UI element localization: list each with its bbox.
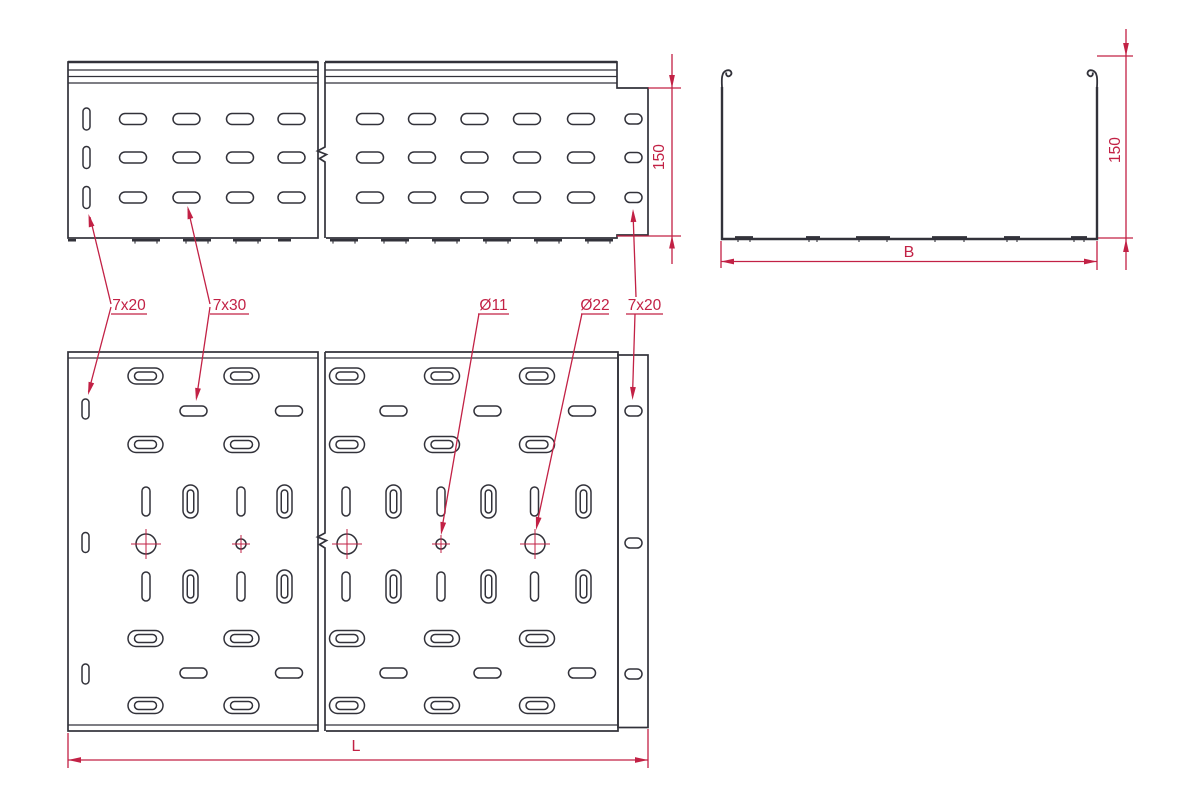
- side-slot-7x30: [120, 152, 147, 163]
- leader-arrow: [185, 205, 194, 219]
- embossed-slot: [128, 368, 163, 384]
- embossed-slot: [520, 368, 555, 384]
- plan-slot-vertical: [237, 487, 245, 516]
- embossed-slot-vertical-inner: [390, 490, 397, 513]
- plan-slot-7x30: [569, 406, 596, 416]
- side-end-slot-7x20: [625, 193, 642, 203]
- embossed-slot-inner: [431, 635, 453, 643]
- embossed-slot-inner: [135, 702, 157, 710]
- dimension-arrow: [721, 259, 734, 265]
- side-section1-outline: [68, 62, 318, 238]
- embossed-slot: [128, 631, 163, 647]
- dimensions: [68, 29, 1133, 768]
- side-slot-7x30: [514, 152, 541, 163]
- embossed-slot-inner: [135, 635, 157, 643]
- embossed-slot-vertical-inner: [580, 490, 587, 513]
- cross-section-view: [722, 70, 1097, 242]
- side-slot-7x30: [278, 152, 305, 163]
- side-slot-7x30: [227, 114, 254, 125]
- side-edge-slot-7x20: [83, 147, 90, 169]
- side-slot-7x30: [278, 192, 305, 203]
- embossed-slot-inner: [231, 635, 253, 643]
- side-slot-7x30: [173, 152, 200, 163]
- callout-hole-d11-label: Ø11: [479, 297, 507, 314]
- side-slot-7x30: [357, 192, 384, 203]
- embossed-slot-inner: [526, 635, 548, 643]
- plan-slot-7x30: [569, 668, 596, 678]
- edge-curl-left: [722, 70, 732, 87]
- side-slot-7x30: [409, 192, 436, 203]
- plan-slot-vertical: [237, 572, 245, 601]
- side-view: [68, 62, 648, 244]
- plan-slot-7x30: [276, 406, 303, 416]
- embossed-slot-inner: [336, 372, 358, 380]
- side-slot-7x30: [357, 114, 384, 125]
- callout-slot-7x20-label: 7x20: [112, 297, 146, 314]
- leader-arrow: [193, 388, 201, 402]
- embossed-slot-vertical-inner: [187, 490, 194, 513]
- callout-slot-7x30-label: 7x30: [213, 297, 247, 314]
- plan-slot-vertical: [342, 487, 350, 516]
- plan-slot-vertical: [437, 487, 445, 516]
- plan-slot-7x30: [380, 406, 407, 416]
- embossed-slot: [128, 437, 163, 453]
- leader-arrow: [630, 387, 636, 400]
- side-slot-7x30: [514, 192, 541, 203]
- callout-hole-d22-label: Ø22: [580, 297, 609, 314]
- dimension-arrow: [1123, 43, 1129, 56]
- side-slot-7x30: [173, 114, 200, 125]
- leader-arrow: [438, 522, 446, 536]
- leader-arrow: [533, 517, 541, 531]
- callout-end-slot-7x20-label: 7x20: [628, 297, 662, 314]
- embossed-slot-inner: [135, 441, 157, 449]
- dim-length-l-label: L: [352, 738, 361, 755]
- embossed-slot: [330, 698, 365, 714]
- side-slot-7x30: [278, 114, 305, 125]
- embossed-slot-inner: [526, 702, 548, 710]
- leader-arrow: [86, 213, 95, 227]
- side-slot-7x30: [461, 152, 488, 163]
- dim-width-b-label: B: [904, 244, 915, 261]
- embossed-slot-inner: [336, 702, 358, 710]
- side-slot-7x30: [357, 152, 384, 163]
- embossed-slot-inner: [231, 441, 253, 449]
- embossed-slot: [520, 631, 555, 647]
- leader-arrow: [85, 382, 94, 396]
- break-line: [318, 62, 327, 238]
- plan-section1-outline: [68, 352, 318, 731]
- embossed-slot-inner: [431, 372, 453, 380]
- embossed-slot-inner: [135, 372, 157, 380]
- leader-line: [90, 217, 111, 304]
- plan-slot-7x30: [474, 406, 501, 416]
- plan-slot-vertical: [342, 572, 350, 601]
- side-slot-7x30: [461, 192, 488, 203]
- dimension-arrow: [669, 75, 675, 88]
- embossed-slot: [224, 698, 259, 714]
- plan-slot-7x30: [180, 406, 207, 416]
- side-slot-7x30: [409, 114, 436, 125]
- plan-slot-vertical: [142, 572, 150, 601]
- side-slot-7x30: [227, 152, 254, 163]
- embossed-slot-inner: [336, 635, 358, 643]
- dimension-arrow: [68, 757, 81, 763]
- section-profile: [722, 87, 1097, 239]
- plan-edge-slot-7x20: [82, 399, 89, 419]
- leader-line: [537, 314, 583, 527]
- plan-end-slot-7x20: [625, 406, 642, 416]
- side-slot-7x30: [568, 192, 595, 203]
- side-slot-7x30: [120, 114, 147, 125]
- embossed-slot: [128, 698, 163, 714]
- embossed-slot: [224, 368, 259, 384]
- side-slot-7x30: [461, 114, 488, 125]
- plan-slot-7x30: [380, 668, 407, 678]
- side-end-slot-7x20: [625, 153, 642, 163]
- edge-curl-right: [1088, 70, 1098, 87]
- plan-edge-slot-7x20: [82, 533, 89, 553]
- drawing-canvas: 7x20 7x30 Ø11 Ø22 7x20 150 150 B L: [0, 0, 1200, 800]
- dim-section-height-label: 150: [1107, 137, 1124, 163]
- embossed-slot-vertical-inner: [485, 490, 492, 513]
- leader-callouts: [85, 205, 663, 535]
- embossed-slot: [425, 368, 460, 384]
- leader-line: [188, 209, 210, 304]
- side-edge-slot-7x20: [83, 187, 90, 209]
- side-slot-7x30: [568, 152, 595, 163]
- embossed-slot-vertical-inner: [281, 575, 288, 598]
- leader-line: [89, 307, 112, 392]
- embossed-slot-vertical-inner: [390, 575, 397, 598]
- embossed-slot-inner: [231, 702, 253, 710]
- leader-arrow: [630, 209, 636, 222]
- dimension-arrow: [635, 757, 648, 763]
- cable-tray-technical-drawing: 7x20 7x30 Ø11 Ø22 7x20 150 150 B L: [0, 0, 1200, 800]
- embossed-slot-inner: [336, 441, 358, 449]
- embossed-slot-inner: [431, 702, 453, 710]
- plan-slot-7x30: [474, 668, 501, 678]
- break-line: [318, 352, 327, 731]
- embossed-slot-vertical-inner: [580, 575, 587, 598]
- side-slot-7x30: [514, 114, 541, 125]
- embossed-slot-vertical-inner: [187, 575, 194, 598]
- dimension-arrow: [669, 236, 675, 249]
- side-slot-7x30: [568, 114, 595, 125]
- dim-side-height-label: 150: [651, 144, 668, 170]
- dimension-arrow: [1084, 259, 1097, 265]
- plan-end-slot-7x20: [625, 538, 642, 548]
- embossed-slot: [224, 437, 259, 453]
- embossed-slot: [520, 698, 555, 714]
- plan-slot-vertical: [531, 487, 539, 516]
- embossed-slot: [425, 698, 460, 714]
- plan-slot-vertical: [142, 487, 150, 516]
- embossed-slot-inner: [431, 441, 453, 449]
- plan-edge-slot-7x20: [82, 664, 89, 684]
- embossed-slot: [330, 437, 365, 453]
- plan-slot-7x30: [276, 668, 303, 678]
- plan-section2-outline: [325, 352, 618, 731]
- plan-slot-vertical: [437, 572, 445, 601]
- embossed-slot: [425, 631, 460, 647]
- embossed-slot-inner: [231, 372, 253, 380]
- plan-slot-7x30: [180, 668, 207, 678]
- embossed-slot-inner: [526, 372, 548, 380]
- plan-end-strip: [618, 355, 648, 728]
- embossed-slot-inner: [526, 441, 548, 449]
- embossed-slot-vertical-inner: [281, 490, 288, 513]
- embossed-slot: [425, 437, 460, 453]
- side-slot-7x30: [120, 192, 147, 203]
- side-slot-7x30: [227, 192, 254, 203]
- embossed-slot: [330, 368, 365, 384]
- embossed-slot: [520, 437, 555, 453]
- leader-line: [442, 314, 480, 532]
- plan-slot-vertical: [531, 572, 539, 601]
- embossed-slot: [330, 631, 365, 647]
- dimension-arrow: [1123, 239, 1129, 252]
- side-end-slot-7x20: [625, 114, 642, 124]
- side-section2-outline: [325, 62, 648, 238]
- side-edge-slot-7x20: [83, 108, 90, 130]
- side-slot-7x30: [409, 152, 436, 163]
- embossed-slot: [224, 631, 259, 647]
- plan-end-slot-7x20: [625, 669, 642, 679]
- side-slot-7x30: [173, 192, 200, 203]
- leader-line: [633, 212, 636, 297]
- embossed-slot-vertical-inner: [485, 575, 492, 598]
